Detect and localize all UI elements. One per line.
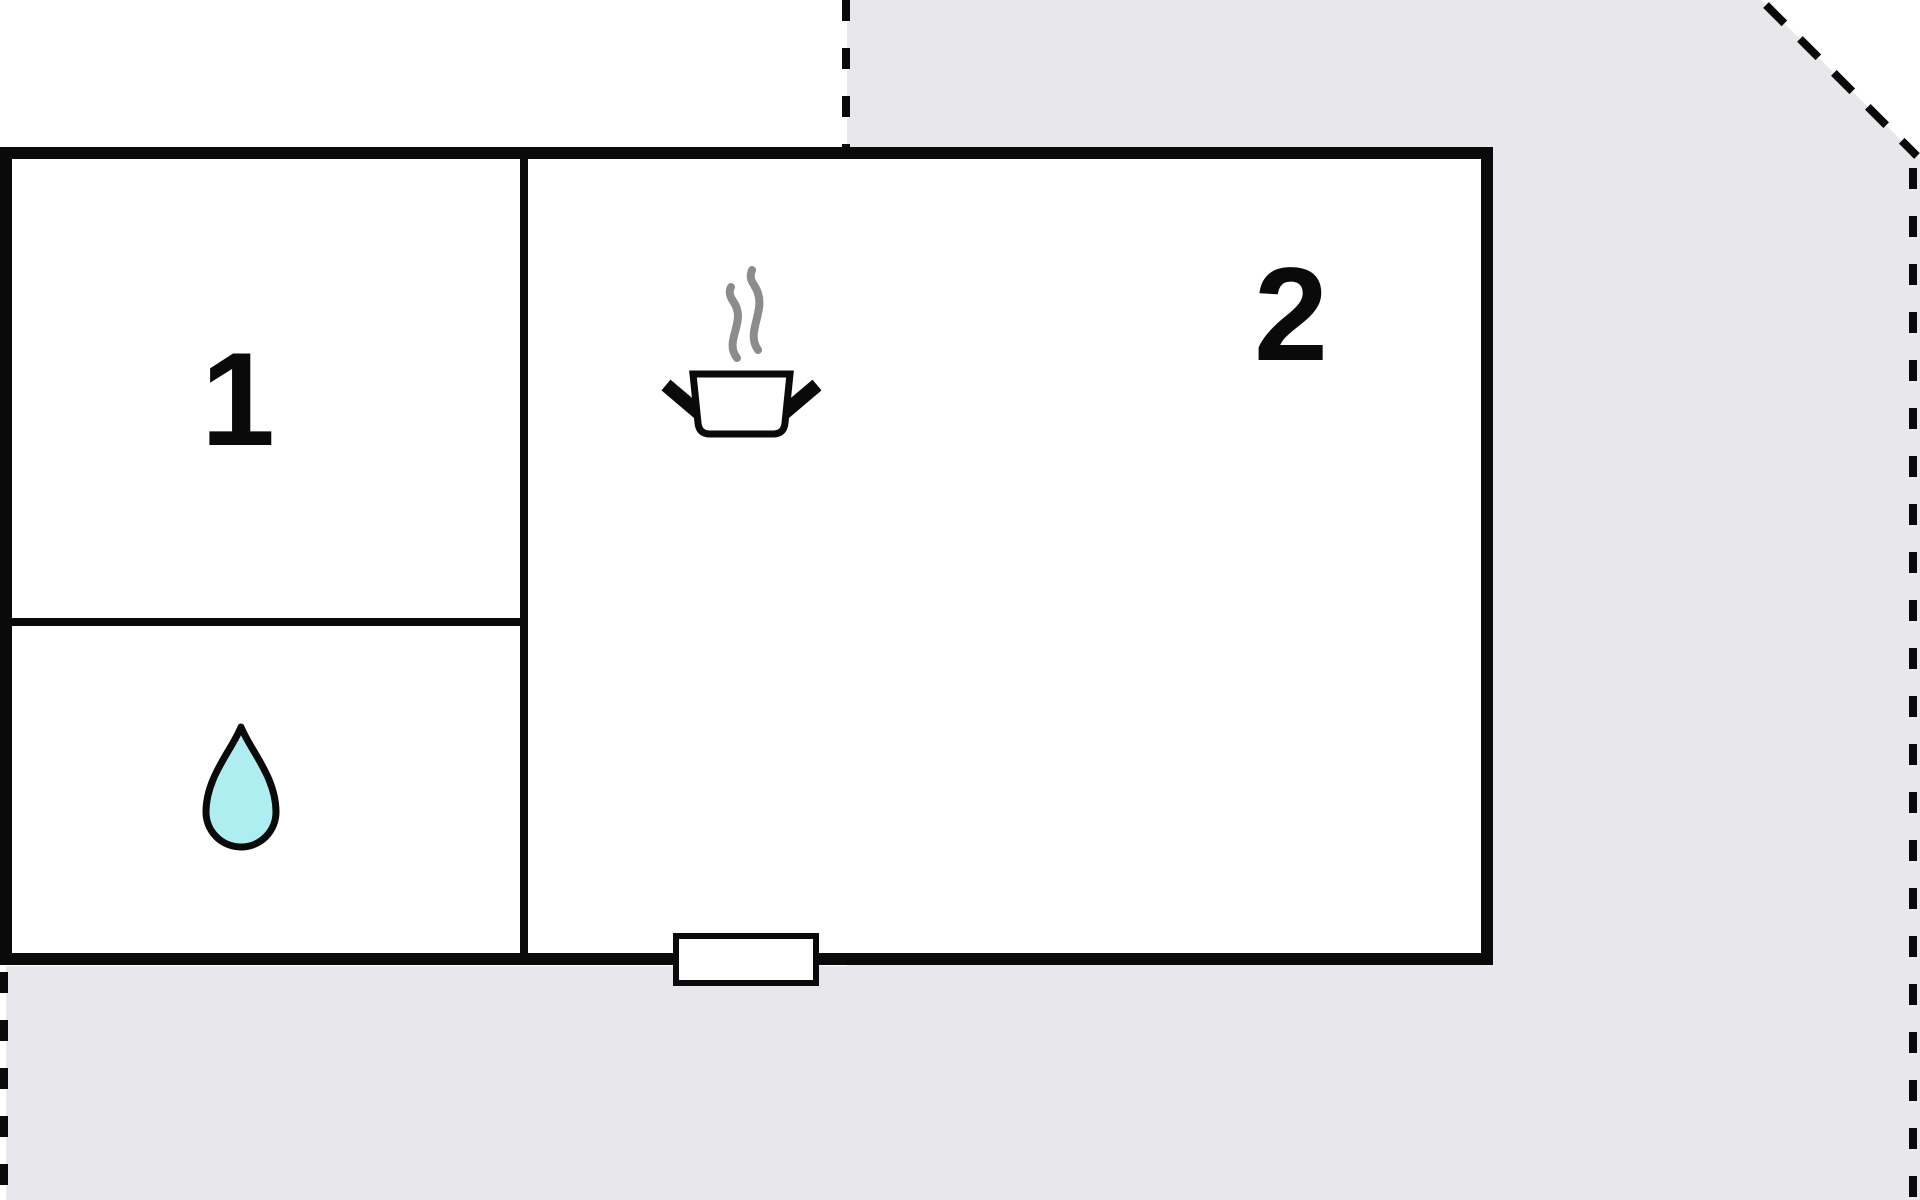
room-1-label: 1 (201, 326, 275, 474)
pot-body (693, 374, 790, 434)
room-2-label: 2 (1254, 241, 1328, 389)
floor-plan-canvas: 1 2 (0, 0, 1920, 1200)
floor-plan-page: 1 2 (0, 0, 1920, 1200)
door-opening (676, 936, 816, 983)
